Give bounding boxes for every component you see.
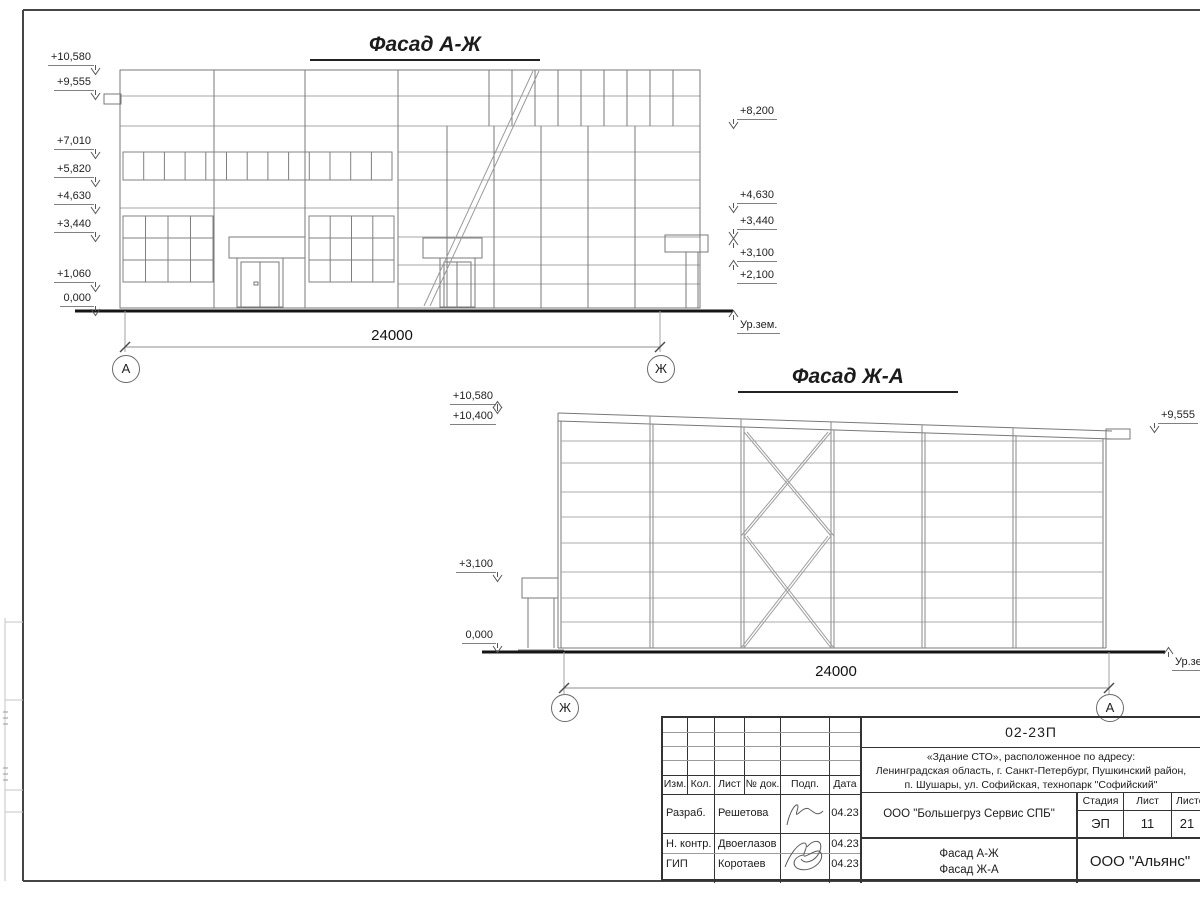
elevation-mark: 0,000 — [440, 629, 496, 644]
elevation-mark: +10,400 — [440, 410, 496, 425]
level-mark-icon — [90, 232, 101, 243]
signature-strokes — [781, 795, 829, 882]
margin-strip — [5, 618, 23, 881]
dimension-label: 24000 — [776, 663, 896, 680]
level-mark-icon — [90, 149, 101, 160]
elevation-mark: +4,630 — [737, 189, 795, 204]
level-mark-icon — [728, 259, 739, 270]
facade-zh-a-drawing — [482, 413, 1165, 694]
facade2-title: Фасад Ж-А — [738, 365, 958, 393]
level-mark-icon — [90, 177, 101, 188]
address-line-2: Ленинградская область, г. Санкт-Петербур… — [862, 764, 1200, 778]
row-role: ГИП — [663, 854, 717, 874]
col-data: Дата — [830, 775, 860, 794]
address-line-1: «Здание СТО», расположенное по адресу: — [862, 750, 1200, 764]
sheet-content-line-1: Фасад А-Ж — [862, 846, 1076, 862]
row-date: 04.23 — [830, 803, 860, 823]
elevation-mark: +2,100 — [737, 269, 795, 284]
stage-value: ЭП — [1078, 810, 1123, 837]
level-mark-icon — [728, 237, 739, 248]
sheets-label: Листов — [1172, 792, 1200, 810]
axis-marker: Ж — [647, 355, 675, 383]
elevation-mark: +3,100 — [440, 558, 496, 573]
org-name: ООО "Альянс" — [1078, 839, 1200, 883]
drawing-sheet: Фасад А-Ж Фасад Ж-А +10,580 +9,555 +7,01… — [0, 0, 1200, 900]
elevation-mark: +1,060 — [38, 268, 94, 283]
row-role: Н. контр. — [663, 834, 717, 854]
row-name: Решетова — [715, 803, 783, 823]
axis-marker: Ж — [551, 694, 579, 722]
elevation-mark: +3,100 — [737, 247, 795, 262]
title-block: 02-23П «Здание СТО», расположенное по ад… — [661, 716, 1200, 881]
col-podp: Подп. — [781, 775, 829, 794]
elevation-mark: +4,630 — [38, 190, 94, 205]
level-mark-icon — [728, 309, 739, 320]
sheet-content-line-2: Фасад Ж-А — [862, 862, 1076, 878]
level-mark-icon — [90, 306, 101, 317]
level-mark-icon — [90, 90, 101, 101]
level-mark-icon — [90, 204, 101, 215]
row-name: Двоеглазов — [715, 834, 783, 854]
elevation-mark: +3,440 — [737, 215, 795, 230]
level-mark-icon — [492, 572, 503, 583]
col-list: Лист — [715, 775, 744, 794]
level-mark-icon — [1149, 423, 1160, 434]
level-mark-icon — [728, 203, 739, 214]
elevation-mark: +8,200 — [737, 105, 795, 120]
row-date: 04.23 — [830, 834, 860, 854]
elevation-mark: +7,010 — [38, 135, 94, 150]
stage-label: Стадия — [1078, 792, 1123, 810]
col-kol: Кол. — [688, 775, 714, 794]
level-mark-icon — [492, 643, 503, 654]
elevation-mark: 0,000 — [38, 292, 94, 307]
sheet-label: Лист — [1124, 792, 1171, 810]
row-name: Коротаев — [715, 854, 783, 874]
doc-number: 02-23П — [860, 718, 1200, 747]
level-mark-icon — [728, 119, 739, 130]
row-role: Разраб. — [663, 803, 717, 823]
elevation-mark: +5,820 — [38, 163, 94, 178]
project-address: «Здание СТО», расположенное по адресу: Л… — [862, 748, 1200, 794]
address-line-3: п. Шушары, ул. Софийская, технопарк "Соф… — [862, 778, 1200, 792]
elevation-mark: +3,440 — [38, 218, 94, 233]
col-izm: Изм. — [663, 775, 687, 794]
elevation-mark: +10,580 — [440, 390, 496, 405]
dimension-label: 24000 — [332, 327, 452, 344]
elevation-mark: +9,555 — [1158, 409, 1200, 424]
level-mark-icon — [492, 400, 503, 411]
company-name: ООО "Большегруз Сервис СПБ" — [862, 792, 1076, 837]
sheet-value: 11 — [1124, 810, 1171, 837]
facade-a-zh-drawing — [75, 70, 733, 352]
elevation-mark: +9,555 — [38, 76, 94, 91]
facade1-title: Фасад А-Ж — [310, 33, 540, 61]
axis-marker: А — [112, 355, 140, 383]
sheets-value: 21 — [1172, 810, 1200, 837]
row-date: 04.23 — [830, 854, 860, 874]
level-mark-icon — [1163, 646, 1174, 657]
ground-level-label: Ур.зем. — [1172, 656, 1200, 671]
ground-level-label: Ур.зем. — [737, 319, 795, 334]
elevation-mark: +10,580 — [38, 51, 94, 66]
level-mark-icon — [90, 65, 101, 76]
sheet-content: Фасад А-Ж Фасад Ж-А — [862, 839, 1076, 890]
col-doc: № док. — [745, 775, 780, 794]
